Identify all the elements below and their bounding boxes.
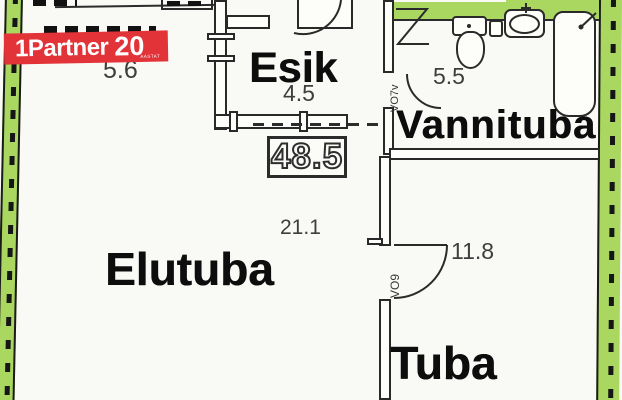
total-area-value: 48.5 — [271, 137, 343, 177]
hallway-top-wall — [226, 15, 270, 29]
total-area-box: 48.5 — [267, 136, 347, 178]
floor-plan: 48.5 5.6 Esik 4.5 5.5 Vannituba 21.1 Elu… — [0, 0, 622, 400]
living-room-area: 21.1 — [280, 217, 321, 238]
logo-brand-text: 1Partner — [15, 35, 109, 61]
wall-hatch-dashes — [608, 0, 616, 400]
cutoff-text-fragments — [33, 0, 77, 6]
bedroom-wall-upper — [379, 156, 391, 246]
bathroom-label: Vannituba — [396, 105, 596, 145]
bathroom-top-wall-highlight-2 — [506, 0, 599, 7]
door-jamb — [207, 55, 235, 62]
hallway-area: 4.5 — [283, 82, 315, 105]
entry-closet-outline — [297, 0, 353, 29]
open-boundary-dashed-line — [253, 123, 385, 126]
door-jamb — [229, 111, 238, 132]
bathroom-door-code: VO7v — [390, 72, 401, 112]
bathroom-area: 5.5 — [433, 65, 465, 88]
bathtub-icon — [553, 11, 596, 117]
washer-icon — [489, 20, 503, 37]
door-jamb — [299, 111, 308, 132]
bedroom-label: Tuba — [390, 340, 496, 386]
bedroom-area: 11.8 — [451, 240, 494, 263]
door-jamb — [207, 33, 235, 40]
door-jamb — [367, 238, 383, 245]
agency-logo: 1Partner 20 AASTAT — [4, 30, 169, 64]
living-room-label: Elutuba — [105, 246, 274, 292]
right-exterior-wall — [596, 0, 622, 400]
bathroom-bottom-wall — [389, 148, 600, 160]
bedroom-door-code: VO9 — [389, 252, 401, 298]
cutoff-text-fragments-2 — [167, 1, 207, 6]
bathroom-left-wall-upper — [383, 0, 394, 73]
sink-basin-icon — [509, 14, 540, 34]
logo-anniversary-caption: AASTAT — [140, 54, 160, 59]
